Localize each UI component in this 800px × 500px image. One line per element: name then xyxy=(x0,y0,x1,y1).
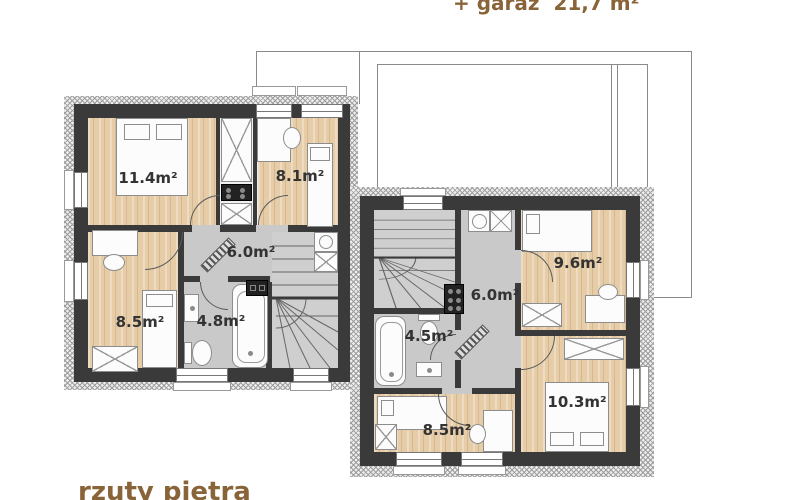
window-sill xyxy=(297,86,347,96)
partition-wall xyxy=(184,276,200,282)
shaft-dot xyxy=(448,298,453,303)
window xyxy=(74,262,88,300)
ground-floor-edge-line xyxy=(359,52,360,104)
bathtub-drain xyxy=(389,372,394,377)
shaft-dot xyxy=(448,289,453,294)
bathtub-drain xyxy=(248,351,253,356)
partition-wall xyxy=(455,360,461,388)
partition-wall xyxy=(515,368,521,452)
shaft-dot xyxy=(448,306,453,311)
window-sill xyxy=(64,170,74,210)
hob-dot xyxy=(226,194,231,199)
pillow xyxy=(124,124,150,140)
garage-outline xyxy=(377,64,648,192)
pillow xyxy=(381,400,394,416)
washer-drum xyxy=(472,214,487,229)
shaft-block xyxy=(444,284,464,314)
washer-drum xyxy=(319,235,333,249)
shaft-dot xyxy=(456,306,461,311)
window-sill xyxy=(64,260,74,302)
bathtub xyxy=(375,316,406,386)
page-caption: rzuty piętra xyxy=(78,477,251,500)
cabinet xyxy=(314,252,338,272)
window-sill xyxy=(640,366,649,408)
toilet-bowl xyxy=(192,340,212,366)
partition-wall xyxy=(180,225,192,232)
garage-area-title: + garaż 21,7 m² xyxy=(453,0,639,15)
chair xyxy=(598,284,618,300)
shaft-block xyxy=(221,184,252,201)
pillow xyxy=(156,124,182,140)
chair xyxy=(469,424,486,444)
window xyxy=(626,262,640,298)
pillow xyxy=(550,432,574,446)
toilet-tank xyxy=(184,342,192,364)
garage-divider-line xyxy=(617,64,618,192)
room-label: 8.5m² xyxy=(116,313,165,331)
window xyxy=(293,368,329,382)
window-sill xyxy=(458,466,506,475)
window-sill xyxy=(393,466,445,475)
desk xyxy=(483,410,513,452)
cabinet xyxy=(490,210,512,232)
room-label: 6.0m² xyxy=(471,286,520,304)
room-label: 8.1m² xyxy=(276,167,325,185)
sink-drain xyxy=(190,306,195,311)
cabinet xyxy=(221,203,252,225)
desk xyxy=(92,230,138,256)
shaft-vent xyxy=(259,285,265,291)
partition-wall xyxy=(220,225,256,232)
pillow xyxy=(580,432,604,446)
shaft-dot xyxy=(456,289,461,294)
shaft-vent xyxy=(250,285,256,291)
chair xyxy=(283,127,301,149)
shaft-block xyxy=(246,280,268,296)
sink xyxy=(416,362,442,377)
wardrobe xyxy=(375,424,397,450)
room-label: 6.0m² xyxy=(227,243,276,261)
window-sill xyxy=(640,260,649,300)
hob-dot xyxy=(240,188,245,193)
window xyxy=(626,368,640,406)
garage-divider-line xyxy=(611,64,612,192)
window xyxy=(74,172,88,208)
room-label: 10.3m² xyxy=(547,393,606,411)
room-label: 4.5m² xyxy=(405,327,454,345)
shaft-dot xyxy=(456,298,461,303)
sink-drain xyxy=(427,368,432,373)
window xyxy=(396,452,442,466)
window xyxy=(461,452,503,466)
stairs xyxy=(374,210,455,308)
wardrobe xyxy=(221,118,252,182)
pillow xyxy=(310,147,330,161)
floor-plan-canvas: 11.4m² 8.1m² 6.0m² 8.5m² 4.8m² xyxy=(0,0,800,500)
window xyxy=(176,368,228,382)
window xyxy=(256,104,292,118)
partition-wall xyxy=(455,314,461,330)
window-sill xyxy=(173,382,231,391)
partition-wall xyxy=(472,388,521,394)
pillow xyxy=(146,294,173,307)
window xyxy=(403,196,443,210)
room-label: 4.8m² xyxy=(197,312,246,330)
room-label: 9.6m² xyxy=(554,254,603,272)
room-label: 11.4m² xyxy=(118,169,177,187)
window-sill xyxy=(290,382,332,391)
washing-machine xyxy=(314,232,338,252)
hob-dot xyxy=(226,188,231,193)
partition-wall xyxy=(374,388,442,394)
room-label: 8.5m² xyxy=(423,421,472,439)
pillow xyxy=(526,214,540,234)
window xyxy=(301,104,343,118)
wardrobe xyxy=(92,346,138,372)
wardrobe xyxy=(522,303,562,327)
washing-machine xyxy=(468,210,490,232)
partition-wall xyxy=(515,210,521,250)
window-sill xyxy=(400,188,446,196)
window-sill xyxy=(252,86,296,96)
wardrobe xyxy=(564,338,624,360)
hob-dot xyxy=(240,194,245,199)
chair xyxy=(103,254,125,271)
toilet-tank xyxy=(418,314,440,321)
